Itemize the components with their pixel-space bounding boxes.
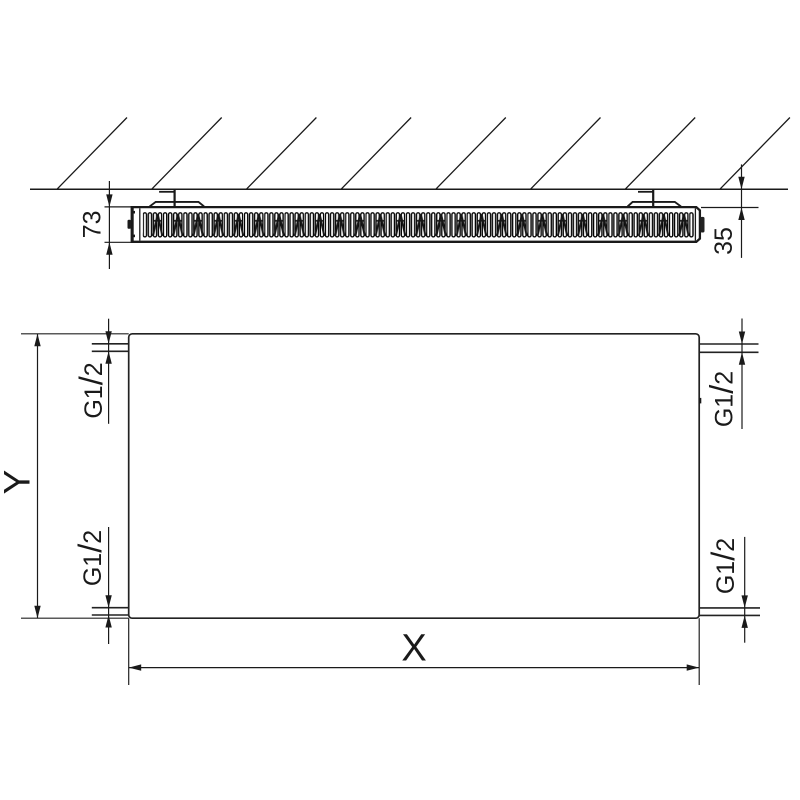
svg-text:Y: Y bbox=[0, 470, 37, 495]
svg-text:35: 35 bbox=[710, 227, 738, 255]
svg-text:G1/2: G1/2 bbox=[705, 538, 741, 594]
svg-text:G1/2: G1/2 bbox=[73, 362, 109, 418]
svg-text:73: 73 bbox=[78, 210, 106, 238]
svg-text:X: X bbox=[401, 627, 426, 669]
svg-text:G1/2: G1/2 bbox=[72, 530, 108, 586]
svg-text:G1/2: G1/2 bbox=[703, 371, 739, 427]
